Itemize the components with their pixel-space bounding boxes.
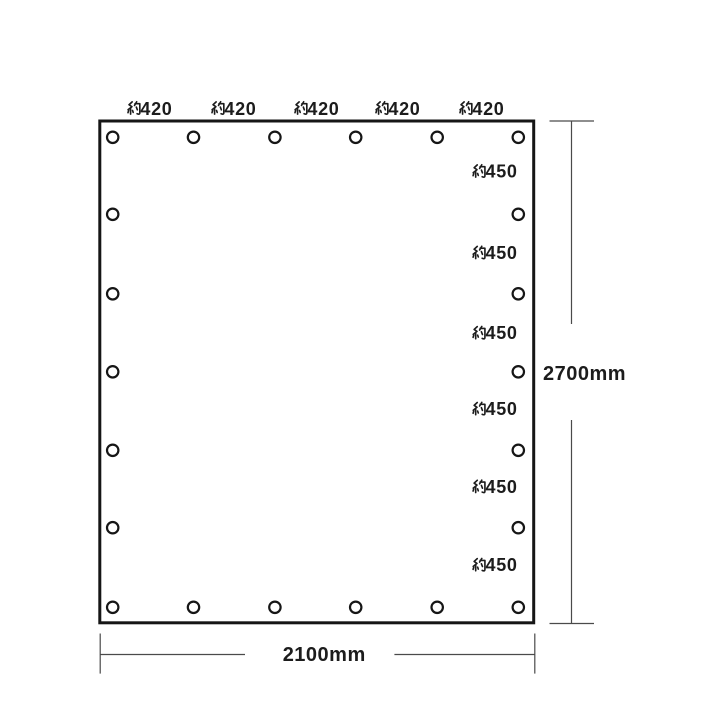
svg-text:420: 420: [307, 99, 339, 119]
svg-text:420: 420: [388, 99, 420, 119]
svg-text:450: 450: [486, 477, 518, 497]
svg-text:2700mm: 2700mm: [543, 363, 626, 385]
svg-text:450: 450: [486, 323, 518, 343]
svg-text:420: 420: [140, 99, 172, 119]
svg-text:450: 450: [486, 243, 518, 263]
svg-text:450: 450: [486, 162, 518, 182]
svg-text:420: 420: [472, 99, 504, 119]
svg-text:420: 420: [224, 99, 256, 119]
svg-text:450: 450: [486, 555, 518, 575]
svg-text:450: 450: [486, 399, 518, 419]
svg-text:2100mm: 2100mm: [283, 644, 366, 666]
